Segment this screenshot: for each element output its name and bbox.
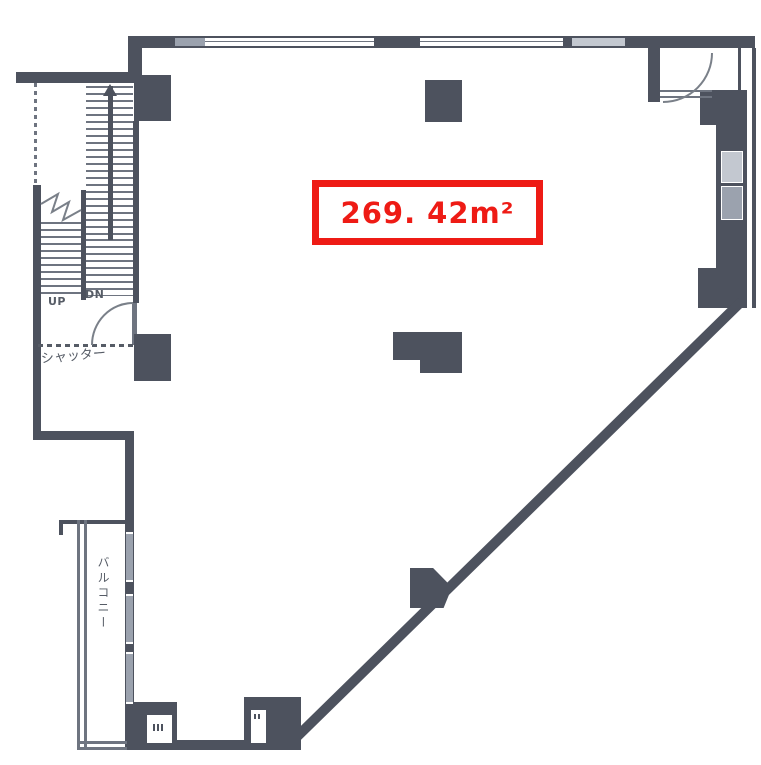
stair-flight-lower-left xyxy=(41,222,81,296)
stair-corner-wall xyxy=(128,36,142,76)
balcony-bottom-rail-outer xyxy=(77,741,127,744)
balcony-window-1 xyxy=(126,532,133,582)
shutter-label: シャッター xyxy=(41,347,107,366)
top-window-frame-1 xyxy=(175,38,205,46)
right-window-1 xyxy=(721,151,743,183)
balcony-top-wall xyxy=(59,520,133,524)
entry-sill-line-1 xyxy=(660,90,712,92)
stair-divider-rail xyxy=(108,86,113,240)
pillar-left-mid xyxy=(134,334,171,381)
top-window-1 xyxy=(205,38,374,46)
balcony-window-2 xyxy=(126,594,133,644)
balcony-rail-inner xyxy=(84,520,87,750)
area-label: 269. 42m² xyxy=(341,196,515,230)
stair-dn-label: DN xyxy=(85,289,104,300)
entry-door-jamb xyxy=(648,46,660,102)
pillar-top-center xyxy=(425,80,462,122)
floor-plan: UP DN シャッター バルコニー 269. 42m² xyxy=(0,0,761,765)
stair-top-wall xyxy=(16,72,142,83)
stair-divider-rail-2 xyxy=(81,190,86,300)
area-annotation-box: 269. 42m² xyxy=(312,180,543,245)
pillar-top-left xyxy=(134,75,171,121)
shaft-block-bottom xyxy=(420,360,462,373)
entry-sill-line-2 xyxy=(660,96,712,98)
stair-direction-arrow-icon xyxy=(103,84,117,96)
diagonal-wall xyxy=(286,298,745,748)
balcony-label: バルコニー xyxy=(97,556,109,676)
entry-niche-wall-line xyxy=(738,48,741,90)
balcony-bottom-rail-inner xyxy=(77,747,127,750)
top-window-2 xyxy=(420,38,563,46)
balcony-wall-stub xyxy=(59,520,63,535)
shaft-hatch-box xyxy=(404,338,421,354)
bottom-shaft-a-box xyxy=(146,714,173,744)
bottom-shaft-b-box xyxy=(250,709,267,744)
hatch-mark xyxy=(153,724,164,731)
right-outer-wall-line xyxy=(752,48,756,308)
hatch-mark xyxy=(254,714,262,719)
left-jog-wall xyxy=(33,431,133,440)
stair-door-swing-arc xyxy=(92,303,133,345)
stair-right-wall xyxy=(133,121,139,303)
stair-up-label: UP xyxy=(48,296,66,307)
shutter-dashed-line xyxy=(38,344,135,347)
pillar-on-diagonal xyxy=(410,568,452,608)
balcony-rail-outer xyxy=(77,520,80,750)
stair-break-line xyxy=(41,194,81,220)
right-window-2 xyxy=(721,186,743,220)
balcony-window-3 xyxy=(126,652,133,704)
left-wall xyxy=(33,185,41,440)
stairwell-open-dotted-line xyxy=(34,83,37,187)
top-window-frame-2 xyxy=(572,38,625,46)
